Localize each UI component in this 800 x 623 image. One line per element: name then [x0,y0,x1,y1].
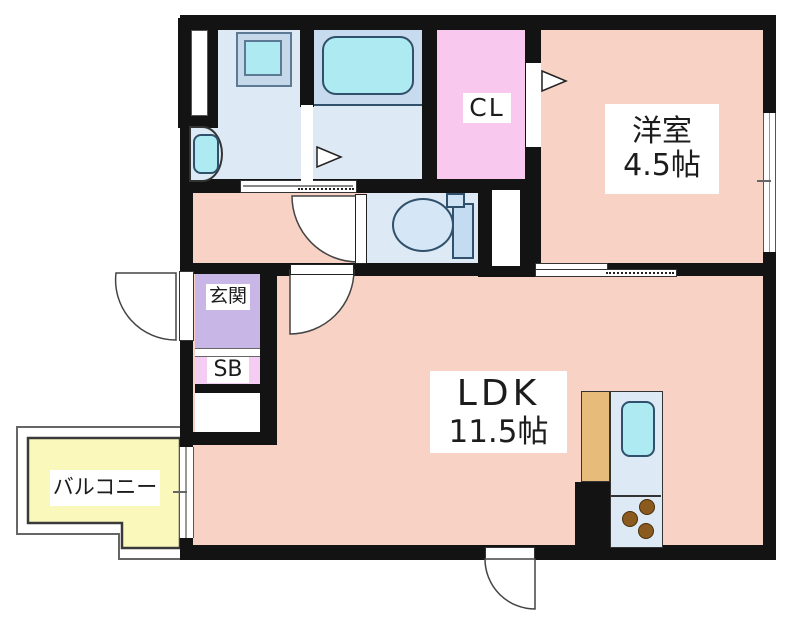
balcony-window-tick [173,491,187,493]
closet-door-gap [526,63,541,147]
entrance-door-arc [116,272,178,342]
wall-bathroom-closet [422,25,437,185]
wall-right [763,15,776,560]
yoshitsu-window-tick [757,180,771,182]
wall-under-shoebox [195,384,260,393]
washbasin-icon [193,134,219,174]
wall-genkan-right [260,263,277,445]
balcony-label: バルコニー [50,470,160,506]
wall-kitchen-block [575,482,615,548]
counter-divider [611,495,661,497]
toilet-door-arc [290,195,360,264]
wall-lower-left [180,432,277,445]
bathroom-door-arrow-icon [316,146,344,170]
toilet-button [446,193,465,208]
wall-washroom-bathroom [300,25,314,107]
washroom-sliding-door [240,180,357,193]
ldk-label: LDK 11.5帖 [430,371,567,453]
shoebox-label: SB [207,357,249,383]
yoshitsu-window-rail [769,113,771,252]
void-space [195,393,260,432]
kitchen-sink-icon [621,401,655,457]
genkan-label: 玄関 [206,284,250,310]
stove-burner-icon [639,499,655,515]
yoshitsu-label: 洋室 4.5帖 [605,104,719,194]
yoshitsu-size: 4.5帖 [623,149,701,183]
kitchen-counter-edge [581,391,610,482]
toilet-bowl-icon [392,198,454,252]
sliding-door-dots [606,272,674,274]
bathroom-door-gap [301,105,313,185]
closet-door-arrow-icon [541,70,569,94]
hall-ldk-door-arc [289,269,356,336]
shaft-void [492,190,520,266]
wall-top [180,15,776,30]
hall-ldk-door-leaf [290,264,354,275]
sliding-door-dots [298,188,354,190]
stove-burner-icon [638,523,654,539]
entrance-door-gap [179,271,194,341]
genkan-step [195,348,260,357]
toilet-door-leaf [355,194,367,264]
balcony-outline-bottom2 [118,558,182,560]
balcony-outline-top [16,426,182,428]
washroom-window [191,30,208,116]
stove-burner-icon [622,511,638,527]
washing-machine-inner [244,40,282,76]
yoshitsu-window [763,113,776,252]
yoshitsu-name: 洋室 [632,115,692,149]
bathtub-icon [322,36,414,95]
floor-plan: 洋室 4.5帖 LDK 11.5帖 CL 玄関 SB バルコニー [0,0,800,623]
ldk-name: LDK [457,374,540,414]
balcony-outline-left [16,426,18,535]
wall-bottom [180,545,776,560]
ldk-size: 11.5帖 [448,415,548,450]
sliding-door-rail [243,185,353,187]
toilet-tank [452,203,474,259]
ldk-exit-door-arc [484,558,537,611]
yoshitsu-sliding-door-b [535,269,677,277]
closet-label: CL [463,93,511,123]
washing-machine-pan-icon [236,32,292,87]
